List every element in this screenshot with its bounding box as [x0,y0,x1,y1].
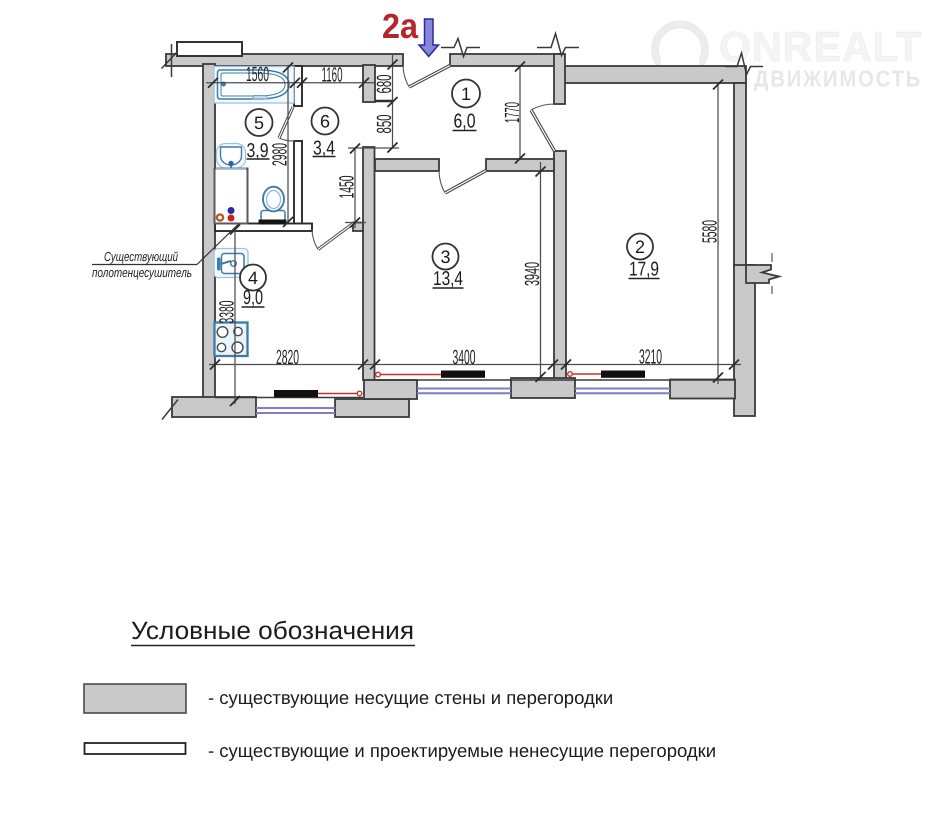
svg-text:3210: 3210 [639,346,662,369]
svg-text:Условные обозначения: Условные обозначения [131,617,414,645]
svg-text:3940: 3940 [521,262,544,286]
svg-text:- существующие и проектируемые: - существующие и проектируемые ненесущие… [208,740,716,761]
svg-text:1: 1 [461,84,471,104]
svg-text:850: 850 [373,115,396,134]
svg-text:6: 6 [320,112,330,132]
svg-text:6,0: 6,0 [454,111,476,133]
svg-text:2980: 2980 [269,143,292,166]
svg-text:1450: 1450 [336,176,359,199]
svg-text:4: 4 [248,268,258,288]
svg-text:680: 680 [373,75,396,94]
svg-text:Существующий: Существующий [104,249,178,264]
svg-text:ДВИЖИМОСТЬ: ДВИЖИМОСТЬ [754,66,922,92]
svg-text:2820: 2820 [276,346,299,369]
svg-text:3400: 3400 [453,346,476,369]
svg-text:2а: 2а [382,7,418,46]
svg-text:9,0: 9,0 [243,287,263,309]
svg-text:5580: 5580 [699,220,722,243]
svg-text:1160: 1160 [322,64,343,87]
svg-text:- существующие несущие стены и: - существующие несущие стены и перегород… [208,687,613,708]
svg-text:2: 2 [635,237,645,257]
svg-text:17,9: 17,9 [629,259,659,281]
svg-text:1770: 1770 [501,102,524,123]
svg-text:3380: 3380 [216,301,239,324]
svg-text:1560: 1560 [246,63,269,86]
svg-text:ONREALT: ONREALT [719,23,922,70]
svg-text:5: 5 [254,113,264,133]
svg-text:3: 3 [440,247,450,267]
svg-text:полотенцесушитель: полотенцесушитель [92,265,192,280]
svg-text:13,4: 13,4 [433,268,463,290]
